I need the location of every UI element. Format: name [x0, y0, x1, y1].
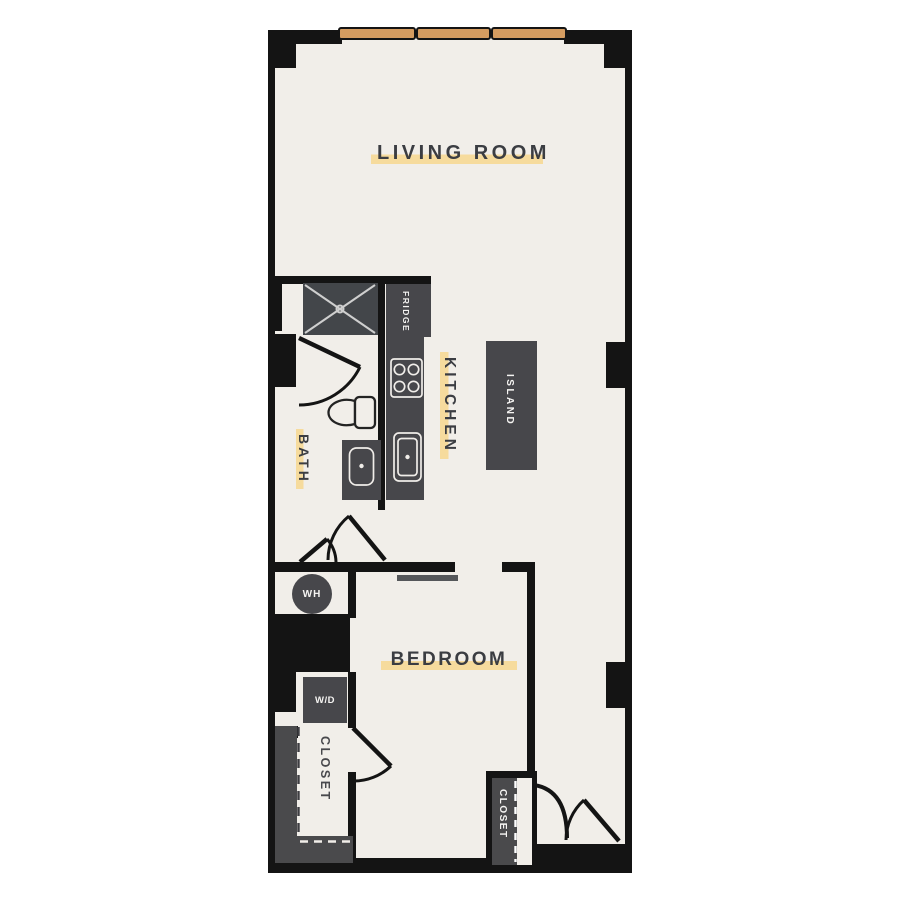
- floorplan-canvas: LIVING ROOM BEDROOM KITCHEN BATH CLOSET …: [0, 0, 900, 901]
- wall-hall-top: [272, 562, 455, 572]
- closet-entry-floor: [517, 778, 532, 865]
- closet-left-poche-bottom: [275, 836, 353, 863]
- wall-top-left: [268, 30, 342, 44]
- block-wd-left: [274, 672, 296, 712]
- bath-vanity: [342, 440, 381, 500]
- window-segment-3: [491, 27, 567, 40]
- pier-left-lower: [268, 334, 296, 387]
- island-label: ISLAND: [504, 374, 515, 426]
- water-heater-label: WH: [292, 574, 332, 614]
- wall-wd-right: [348, 672, 356, 728]
- pier-right-lower: [606, 662, 632, 708]
- window-segment-1: [338, 27, 416, 40]
- bath-label: BATH: [296, 429, 312, 489]
- kitchen-label: KITCHEN: [440, 352, 458, 459]
- kitchen-counter: [386, 337, 424, 500]
- shower: [303, 283, 378, 335]
- wall-nook-right: [348, 572, 356, 618]
- wall-right: [625, 30, 632, 873]
- washer-dryer-label: W/D: [303, 677, 347, 723]
- chase-block: [274, 614, 350, 672]
- fridge-label: FRIDGE: [401, 291, 411, 332]
- closet-left-label: CLOSET: [318, 736, 332, 802]
- window-segment-2: [416, 27, 491, 40]
- bedroom-label: BEDROOM: [381, 649, 517, 671]
- entry-bottom-band: [535, 844, 632, 860]
- living-room-label: LIVING ROOM: [371, 142, 543, 165]
- pier-right-middle: [606, 342, 632, 388]
- wall-top-right: [564, 30, 632, 44]
- pier-top-left: [272, 44, 296, 68]
- wall-bedroom-right: [527, 562, 535, 778]
- closet-entry-label: CLOSET: [497, 789, 508, 839]
- pier-left-upper: [268, 277, 282, 331]
- bedroom-opening-bar: [397, 575, 458, 581]
- wall-left: [268, 30, 275, 873]
